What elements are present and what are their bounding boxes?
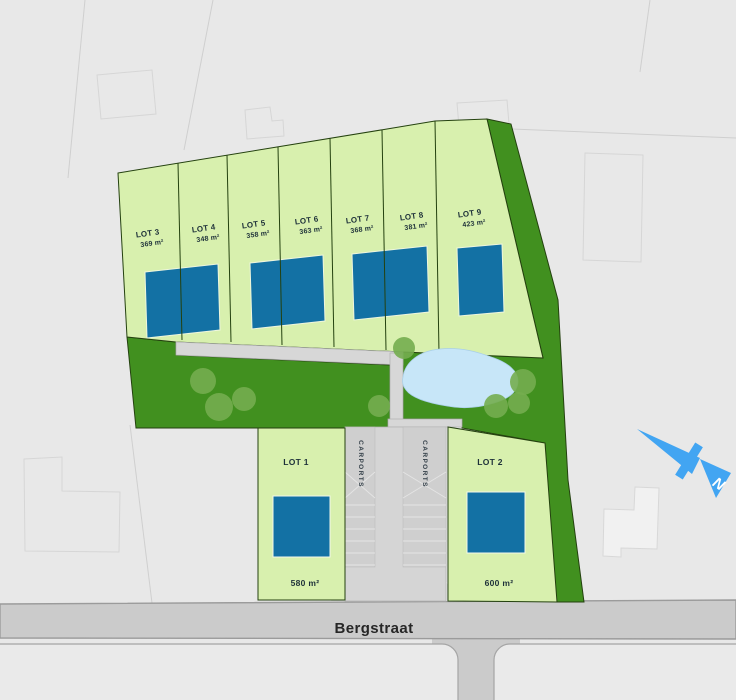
lot-2-area: 600 m² xyxy=(485,578,514,588)
footpath-apron xyxy=(388,419,462,427)
house-lot-2 xyxy=(467,492,525,553)
house-lots-5-6 xyxy=(250,255,325,329)
south-parcel-block xyxy=(0,644,458,700)
site-plan-page: Bergstraat CARPORTS CARPORTS xyxy=(0,0,736,700)
south-parcel-block xyxy=(494,644,736,700)
carports-label-left: CARPORTS xyxy=(357,440,364,488)
tree-symbol xyxy=(190,368,216,394)
house-lots-3-4 xyxy=(145,264,220,338)
house-lots-7-8 xyxy=(352,246,429,320)
lot-1-label: LOT 1 xyxy=(283,457,309,467)
tree-symbol xyxy=(368,395,390,417)
tree-symbol xyxy=(508,392,530,414)
tree-symbol xyxy=(393,337,415,359)
tree-symbol xyxy=(205,393,233,421)
tree-symbol xyxy=(232,387,256,411)
tree-symbol xyxy=(510,369,536,395)
lot-2-label: LOT 2 xyxy=(477,457,503,467)
street-name-label: Bergstraat xyxy=(334,620,413,637)
house-lot-9 xyxy=(457,244,504,316)
lot-1-area: 580 m² xyxy=(291,578,320,588)
tree-symbol xyxy=(484,394,508,418)
footpath-vertical xyxy=(390,353,403,421)
carports-label-right: CARPORTS xyxy=(421,440,428,488)
house-lot-1 xyxy=(273,496,330,557)
site-plan: Bergstraat CARPORTS CARPORTS xyxy=(0,0,736,700)
